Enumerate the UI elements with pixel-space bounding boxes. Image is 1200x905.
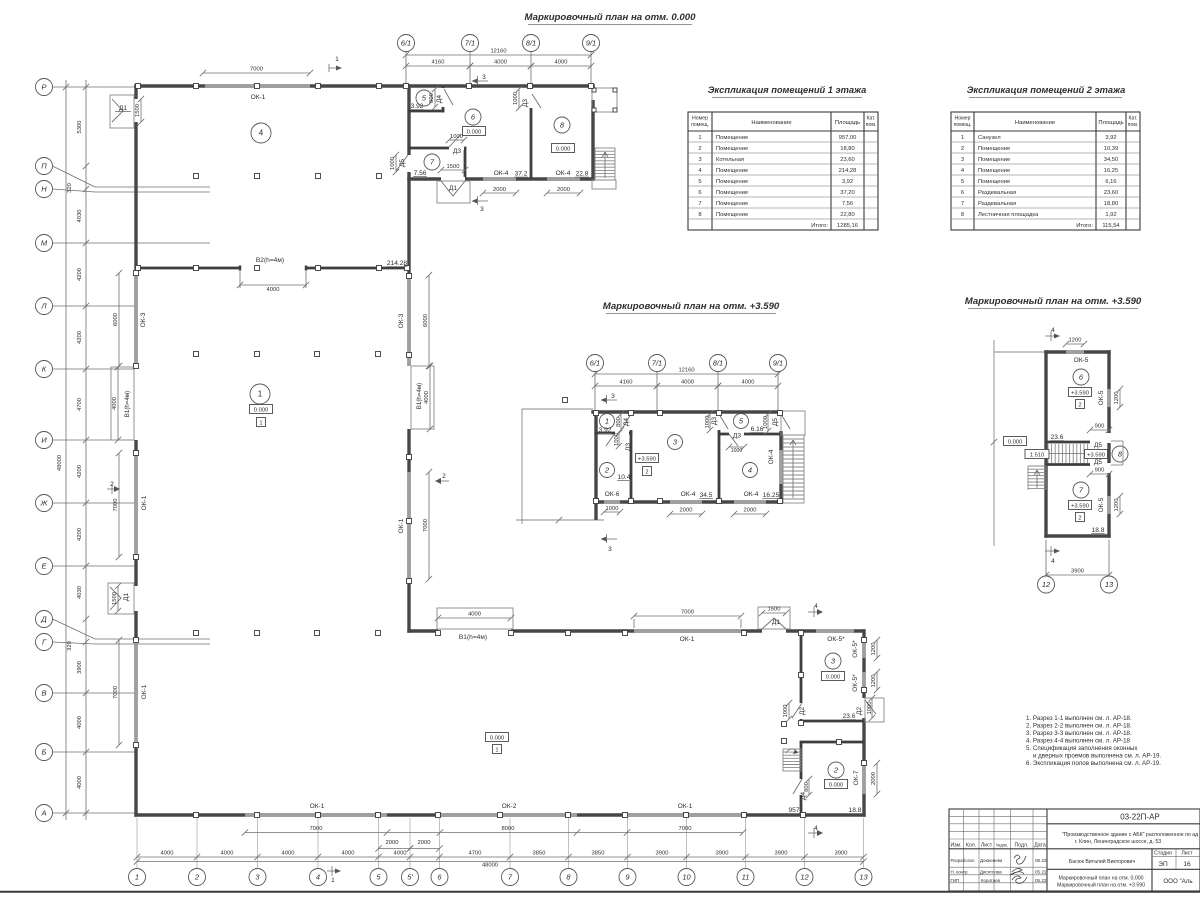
svg-text:23.6: 23.6	[843, 713, 856, 720]
svg-text:Лист: Лист	[1181, 851, 1193, 857]
svg-text:1: 1	[135, 872, 139, 881]
svg-text:2: 2	[645, 469, 648, 475]
svg-text:4000: 4000	[681, 380, 694, 386]
svg-text:4030: 4030	[77, 586, 83, 599]
svg-text:ОК-5: ОК-5	[1098, 390, 1105, 405]
svg-text:2: 2	[604, 465, 610, 474]
svg-text:18,80: 18,80	[840, 146, 855, 152]
svg-text:6/1: 6/1	[590, 358, 600, 367]
svg-text:Площадь: Площадь	[835, 120, 860, 126]
svg-text:Изм.: Изм.	[950, 843, 961, 849]
svg-text:1: 1	[335, 56, 339, 63]
svg-text:Помещение: Помещение	[716, 201, 748, 207]
svg-text:ОК-5: ОК-5	[1098, 497, 1105, 512]
svg-text:48000: 48000	[482, 863, 498, 869]
svg-text:1000: 1000	[513, 92, 519, 105]
svg-text:Маркировочный план на отм. 0.0: Маркировочный план на отм. 0.000	[525, 12, 697, 23]
svg-text:7000: 7000	[681, 610, 694, 616]
svg-text:1200: 1200	[1114, 499, 1120, 512]
svg-text:4000: 4000	[282, 851, 295, 857]
svg-text:320: 320	[67, 183, 73, 193]
svg-text:10: 10	[682, 872, 691, 881]
svg-text:Экспликация помещений 1 этажа: Экспликация помещений 1 этажа	[708, 85, 867, 95]
svg-text:4000: 4000	[394, 851, 407, 857]
svg-text:6000: 6000	[113, 313, 119, 326]
svg-text:4000: 4000	[468, 612, 481, 618]
svg-text:Лист: Лист	[981, 843, 993, 849]
svg-text:Д3: Д3	[625, 443, 632, 451]
svg-text:957,00: 957,00	[839, 135, 857, 141]
svg-text:Докженева: Докженева	[980, 858, 1003, 863]
svg-text:12160: 12160	[490, 49, 506, 55]
svg-text:1500: 1500	[112, 592, 118, 605]
svg-text:48000: 48000	[57, 455, 63, 471]
svg-text:7/1: 7/1	[652, 358, 662, 367]
svg-text:4000: 4000	[77, 776, 83, 789]
svg-text:2: 2	[833, 765, 839, 774]
svg-text:4: 4	[814, 603, 818, 610]
svg-text:4000: 4000	[112, 397, 118, 410]
svg-text:05.22: 05.22	[1035, 858, 1047, 863]
svg-text:Раздевальная: Раздевальная	[978, 201, 1016, 207]
svg-text:Д5: Д5	[1094, 459, 1102, 466]
svg-text:4000: 4000	[161, 851, 174, 857]
svg-text:ОК-4: ОК-4	[744, 491, 759, 498]
svg-text:4700: 4700	[77, 398, 83, 411]
svg-text:И: И	[41, 435, 47, 444]
svg-text:4: 4	[1051, 558, 1055, 565]
svg-text:22.8: 22.8	[576, 171, 589, 178]
svg-text:П: П	[41, 161, 47, 170]
svg-text:Д5: Д5	[399, 159, 406, 167]
svg-text:34,50: 34,50	[1104, 157, 1119, 163]
svg-text:900: 900	[1095, 468, 1105, 474]
svg-text:3900: 3900	[656, 851, 669, 857]
svg-text:Д2: Д2	[856, 707, 863, 715]
svg-text:Санузел: Санузел	[978, 135, 1001, 141]
svg-text:7,56: 7,56	[842, 201, 853, 207]
svg-text:4: 4	[259, 128, 264, 137]
svg-text:+3.590: +3.590	[1071, 503, 1089, 509]
svg-text:4160: 4160	[620, 380, 633, 386]
svg-text:+3.590: +3.590	[1087, 452, 1105, 458]
svg-text:6.16: 6.16	[751, 426, 764, 433]
svg-text:Раздевальная: Раздевальная	[978, 190, 1016, 196]
svg-text:5': 5'	[407, 872, 413, 881]
svg-text:3.92: 3.92	[411, 103, 424, 110]
svg-text:2. Разрез 2-2 выполнен см. л.: 2. Разрез 2-2 выполнен см. л. АР-18.	[1026, 723, 1132, 730]
svg-text:Д1: Д1	[123, 593, 130, 601]
svg-text:1. Разрез 1-1 выполнен см. л.: 1. Разрез 1-1 выполнен см. л. АР-18.	[1026, 715, 1132, 722]
svg-text:4200: 4200	[77, 331, 83, 344]
svg-text:Д1: Д1	[449, 185, 457, 192]
svg-text:+3.590: +3.590	[1071, 390, 1089, 396]
svg-text:1000: 1000	[731, 448, 743, 454]
svg-text:Д2: Д2	[799, 707, 806, 715]
svg-text:помещ.: помещ.	[954, 122, 972, 128]
svg-text:1000: 1000	[614, 433, 620, 446]
svg-text:Помещение: Помещение	[716, 212, 748, 218]
svg-text:2: 2	[194, 872, 200, 881]
svg-text:7.56: 7.56	[414, 170, 427, 177]
svg-text:3.92: 3.92	[599, 427, 612, 434]
svg-text:ОК-5: ОК-5	[1074, 357, 1089, 364]
svg-text:05.22: 05.22	[1035, 870, 1047, 875]
svg-text:Помещение: Помещение	[716, 168, 748, 174]
svg-text:34.5: 34.5	[700, 492, 713, 499]
svg-text:ОК-4: ОК-4	[494, 170, 509, 177]
svg-text:6. Экспликация полов выполнена: 6. Экспликация полов выполнена см. л. АР…	[1026, 760, 1161, 767]
svg-text:2000: 2000	[744, 508, 757, 514]
svg-text:23.6: 23.6	[1051, 434, 1064, 441]
svg-text:16.25: 16.25	[763, 492, 780, 499]
svg-text:16: 16	[1183, 861, 1191, 868]
svg-text:ОК-2: ОК-2	[502, 803, 517, 810]
svg-text:В1(h=4м): В1(h=4м)	[416, 383, 423, 409]
svg-text:1000: 1000	[867, 702, 873, 715]
svg-text:+3.590: +3.590	[638, 456, 656, 462]
svg-text:18,80: 18,80	[1104, 201, 1119, 207]
svg-text:ОК-1: ОК-1	[678, 803, 693, 810]
svg-text:7: 7	[698, 201, 701, 207]
svg-text:Д1: Д1	[119, 105, 127, 112]
svg-text:Экспликация помещений 2 этажа: Экспликация помещений 2 этажа	[967, 85, 1126, 95]
svg-text:900: 900	[1095, 424, 1105, 430]
svg-text:Подл.: Подл.	[1015, 843, 1029, 849]
svg-text:6000: 6000	[423, 314, 429, 327]
svg-text:ОК-1: ОК-1	[398, 518, 405, 533]
svg-text:3,92: 3,92	[842, 179, 853, 185]
svg-text:2: 2	[1078, 402, 1081, 408]
svg-text:3: 3	[480, 206, 484, 213]
svg-text:Помещение: Помещение	[978, 146, 1010, 152]
svg-text:Кат.: Кат.	[1128, 116, 1137, 122]
svg-text:115,54: 115,54	[1102, 223, 1120, 229]
svg-text:помещ.: помещ.	[691, 122, 709, 128]
svg-text:ЭП: ЭП	[1158, 861, 1168, 868]
svg-text:Д3: Д3	[733, 433, 741, 440]
svg-text:2000: 2000	[386, 840, 399, 846]
svg-text:ОК-3: ОК-3	[140, 312, 147, 327]
svg-text:Площадь: Площадь	[1098, 120, 1123, 126]
svg-text:3. Разрез 3-3 выполнен см. л.: 3. Разрез 3-3 выполнен см. л. АР-18.	[1026, 730, 1132, 737]
svg-text:Д5: Д5	[772, 418, 779, 426]
svg-text:0.000: 0.000	[490, 735, 505, 741]
svg-text:5: 5	[961, 179, 964, 185]
svg-text:0.000: 0.000	[556, 146, 571, 152]
svg-text:3850: 3850	[592, 851, 605, 857]
svg-text:22,80: 22,80	[840, 212, 855, 218]
svg-text:1200: 1200	[871, 675, 877, 688]
svg-text:Лестничная площадка: Лестничная площадка	[978, 212, 1039, 218]
svg-text:1: 1	[961, 135, 964, 141]
svg-text:6/1: 6/1	[401, 38, 411, 47]
svg-text:ООО "Аль: ООО "Аль	[1163, 878, 1192, 885]
svg-text:320: 320	[67, 641, 73, 651]
svg-text:ГИП: ГИП	[951, 878, 960, 883]
svg-text:Котельная: Котельная	[716, 157, 744, 163]
svg-text:Разработал: Разработал	[951, 858, 975, 863]
svg-text:2: 2	[698, 146, 701, 152]
svg-text:13: 13	[1105, 580, 1114, 589]
svg-text:4200: 4200	[77, 268, 83, 281]
svg-text:0.000: 0.000	[467, 129, 482, 135]
svg-text:1200: 1200	[871, 643, 877, 656]
svg-text:№док.: №док.	[996, 843, 1008, 848]
svg-text:1000: 1000	[763, 416, 769, 429]
svg-text:Л: Л	[40, 301, 47, 310]
svg-text:3900: 3900	[775, 851, 788, 857]
svg-text:Д1: Д1	[772, 619, 780, 626]
svg-text:05.22: 05.22	[1035, 878, 1047, 883]
svg-text:214,28: 214,28	[839, 168, 857, 174]
svg-text:4160: 4160	[432, 60, 445, 66]
svg-text:4: 4	[316, 872, 320, 881]
svg-text:7000: 7000	[113, 686, 119, 699]
svg-text:А: А	[40, 808, 46, 817]
svg-text:2: 2	[961, 146, 964, 152]
svg-text:7/1: 7/1	[465, 38, 475, 47]
svg-text:Стадия: Стадия	[1154, 851, 1172, 857]
svg-text:ОК-7: ОК-7	[853, 770, 860, 785]
svg-text:7000: 7000	[423, 519, 429, 532]
svg-text:ОК-3: ОК-3	[398, 313, 405, 328]
svg-text:1200: 1200	[1114, 392, 1120, 405]
svg-text:7000: 7000	[250, 67, 263, 73]
svg-text:г. Клин, Ленинградское шоссе,: г. Клин, Ленинградское шоссе, д. 53	[1075, 839, 1161, 845]
svg-text:4000: 4000	[267, 287, 280, 293]
svg-text:ОК-1: ОК-1	[310, 803, 325, 810]
svg-text:Итого:: Итого:	[1076, 223, 1093, 229]
svg-text:4000: 4000	[77, 716, 83, 729]
svg-text:4000: 4000	[555, 60, 568, 66]
svg-text:Н: Н	[41, 184, 47, 193]
svg-text:2: 2	[442, 473, 446, 480]
svg-text:4. Разрез 4-4 выполнен см. л.: 4. Разрез 4-4 выполнен см. л. АР-18	[1026, 738, 1131, 745]
svg-text:Дата: Дата	[1034, 843, 1046, 849]
svg-text:3: 3	[698, 157, 701, 163]
svg-text:2000: 2000	[871, 772, 877, 785]
svg-text:Д4: Д4	[623, 418, 630, 426]
svg-text:Помещение: Помещение	[978, 157, 1010, 163]
svg-text:Номер: Номер	[955, 116, 971, 122]
svg-text:37.2: 37.2	[515, 171, 528, 178]
svg-text:6,16: 6,16	[1105, 179, 1116, 185]
svg-text:18.8: 18.8	[849, 807, 862, 814]
svg-text:7: 7	[961, 201, 964, 207]
svg-text:8/1: 8/1	[713, 358, 723, 367]
svg-text:10.4: 10.4	[618, 474, 631, 481]
svg-text:8: 8	[961, 212, 964, 218]
svg-text:Кол.: Кол.	[966, 843, 976, 849]
svg-text:ОК-4: ОК-4	[556, 170, 571, 177]
svg-text:9/1: 9/1	[586, 38, 596, 47]
svg-text:В2(h=4м): В2(h=4м)	[256, 257, 284, 264]
svg-text:Помещение: Помещение	[716, 179, 748, 185]
svg-text:К: К	[42, 364, 47, 373]
svg-text:214.28: 214.28	[387, 260, 408, 267]
svg-text:0.000: 0.000	[829, 782, 844, 788]
svg-text:Помещение: Помещение	[716, 135, 748, 141]
svg-text:Д: Д	[40, 614, 47, 623]
svg-text:1: 1	[605, 416, 609, 425]
svg-text:1.510: 1.510	[1030, 452, 1045, 458]
svg-text:2000: 2000	[680, 508, 693, 514]
svg-text:13: 13	[859, 872, 868, 881]
svg-text:4000: 4000	[424, 391, 430, 404]
svg-text:1: 1	[259, 420, 262, 426]
svg-text:Д3: Д3	[711, 417, 718, 425]
svg-text:М: М	[41, 238, 48, 247]
svg-text:ОК-1: ОК-1	[141, 684, 148, 699]
svg-text:2000: 2000	[493, 187, 506, 193]
svg-text:03-22П-АР: 03-22П-АР	[1120, 813, 1160, 822]
svg-text:ОК-4: ОК-4	[768, 449, 775, 464]
svg-text:Маркировочный план на отм. 0.0: Маркировочный план на отм. 0.000	[1059, 875, 1144, 882]
svg-text:4000: 4000	[494, 60, 507, 66]
svg-text:0.000: 0.000	[1008, 439, 1023, 445]
svg-text:23,60: 23,60	[840, 157, 855, 163]
svg-text:Д5: Д5	[1094, 442, 1102, 449]
svg-text:Помещение: Помещение	[978, 168, 1010, 174]
svg-text:Наименование: Наименование	[751, 120, 791, 126]
svg-text:4200: 4200	[77, 465, 83, 478]
svg-text:ОК-5*: ОК-5*	[852, 674, 859, 692]
svg-text:3900: 3900	[835, 851, 848, 857]
svg-text:2: 2	[1078, 515, 1081, 521]
svg-text:7000: 7000	[113, 499, 119, 512]
svg-text:ОК-4: ОК-4	[681, 491, 696, 498]
svg-text:3: 3	[611, 393, 615, 400]
svg-text:1000: 1000	[705, 416, 711, 429]
svg-text:16,25: 16,25	[1104, 168, 1119, 174]
svg-text:4030: 4030	[77, 210, 83, 223]
svg-text:Маркировочный план на отм. +3.: Маркировочный план на отм. +3.590	[965, 296, 1142, 307]
svg-text:12: 12	[1042, 580, 1051, 589]
svg-text:Ж: Ж	[40, 498, 49, 507]
svg-text:пом.: пом.	[1128, 122, 1139, 128]
svg-text:1500: 1500	[447, 164, 460, 170]
svg-text:12: 12	[800, 872, 809, 881]
svg-text:1: 1	[331, 877, 335, 884]
svg-text:3,92: 3,92	[1105, 135, 1116, 141]
svg-text:3: 3	[482, 74, 486, 81]
svg-text:23,60: 23,60	[1104, 190, 1119, 196]
svg-text:Кат.: Кат.	[866, 116, 875, 122]
svg-text:800: 800	[616, 417, 622, 427]
svg-text:12160: 12160	[678, 368, 694, 374]
svg-text:1000: 1000	[783, 705, 789, 718]
svg-text:0.000: 0.000	[826, 674, 841, 680]
svg-text:1000: 1000	[450, 134, 463, 140]
svg-text:Помещение: Помещение	[978, 179, 1010, 185]
svg-text:1: 1	[495, 747, 498, 753]
svg-text:В1(h=4м): В1(h=4м)	[124, 391, 131, 417]
svg-text:ОК-1: ОК-1	[251, 94, 266, 101]
svg-text:800: 800	[804, 782, 810, 792]
svg-text:Помещение: Помещение	[716, 146, 748, 152]
svg-text:Д3: Д3	[453, 148, 461, 155]
svg-text:пом.: пом.	[866, 122, 877, 128]
svg-text:1000: 1000	[606, 506, 619, 512]
svg-text:1500: 1500	[768, 607, 781, 613]
svg-text:5300: 5300	[77, 121, 83, 134]
svg-text:ОК-1: ОК-1	[141, 495, 148, 510]
svg-text:В: В	[41, 688, 46, 697]
svg-text:4700: 4700	[469, 851, 482, 857]
svg-text:Б: Б	[42, 747, 47, 756]
svg-text:Н. контр.: Н. контр.	[951, 870, 969, 875]
svg-text:10,39: 10,39	[1104, 146, 1119, 152]
svg-text:Басюк Виталий Викторович: Басюк Виталий Викторович	[1069, 858, 1136, 865]
svg-text:1: 1	[258, 389, 263, 398]
svg-text:4000: 4000	[742, 380, 755, 386]
svg-text:4: 4	[748, 465, 752, 474]
svg-text:1000: 1000	[390, 157, 396, 170]
svg-text:3: 3	[961, 157, 964, 163]
svg-text:4000: 4000	[342, 851, 355, 857]
svg-text:Маркировочный план на отм. +3.: Маркировочный план на отм. +3.590	[1057, 882, 1145, 889]
svg-text:9/1: 9/1	[773, 358, 783, 367]
svg-text:957: 957	[788, 807, 799, 814]
svg-text:ОК-6: ОК-6	[605, 491, 620, 498]
svg-text:3900: 3900	[1071, 569, 1084, 575]
svg-text:0.000: 0.000	[254, 407, 269, 413]
svg-text:Маркировочный план на отм. +3.: Маркировочный план на отм. +3.590	[603, 301, 780, 312]
svg-text:1500: 1500	[135, 104, 141, 117]
svg-text:"Производственное здание с АБК: "Производственное здание с АБК" располож…	[1062, 832, 1198, 838]
svg-text:Р: Р	[41, 82, 46, 91]
svg-text:37,20: 37,20	[840, 190, 855, 196]
svg-text:В1(h=4м): В1(h=4м)	[459, 634, 487, 641]
svg-text:4000: 4000	[221, 851, 234, 857]
svg-text:6: 6	[961, 190, 964, 196]
svg-text:Коротаев: Коротаев	[981, 878, 1001, 883]
svg-text:2000: 2000	[418, 840, 431, 846]
svg-text:4: 4	[1051, 327, 1055, 334]
svg-text:Д4: Д4	[436, 95, 443, 103]
svg-text:5. Спецификация заполнения око: 5. Спецификация заполнения оконных	[1026, 745, 1138, 752]
svg-text:3900: 3900	[716, 851, 729, 857]
svg-text:Помещение: Помещение	[716, 190, 748, 196]
svg-text:2000: 2000	[557, 187, 570, 193]
svg-text:7000: 7000	[310, 826, 323, 832]
svg-text:5: 5	[698, 179, 701, 185]
svg-text:4200: 4200	[77, 528, 83, 541]
svg-text:3900: 3900	[77, 661, 83, 674]
svg-text:1200: 1200	[1069, 338, 1082, 344]
svg-text:ОК-1: ОК-1	[680, 636, 695, 643]
svg-text:Наименование: Наименование	[1015, 120, 1055, 126]
svg-text:3: 3	[608, 546, 612, 553]
svg-text:ОК-5*: ОК-5*	[852, 640, 859, 658]
svg-text:6: 6	[698, 190, 701, 196]
svg-text:Д4: Д4	[800, 792, 807, 800]
svg-text:3850: 3850	[533, 851, 546, 857]
svg-text:11: 11	[742, 872, 750, 881]
svg-text:Номер: Номер	[692, 116, 708, 122]
svg-text:Дисятлова: Дисятлова	[980, 870, 1002, 875]
svg-text:Д3: Д3	[522, 99, 529, 107]
svg-text:1: 1	[698, 135, 701, 141]
svg-text:8: 8	[698, 212, 701, 218]
svg-text:1285,16: 1285,16	[837, 223, 858, 229]
svg-text:8/1: 8/1	[526, 38, 536, 47]
svg-text:800: 800	[429, 93, 435, 103]
svg-text:18.8: 18.8	[1092, 527, 1105, 534]
svg-text:ОК-5*: ОК-5*	[827, 636, 845, 643]
svg-text:7000: 7000	[679, 826, 692, 832]
